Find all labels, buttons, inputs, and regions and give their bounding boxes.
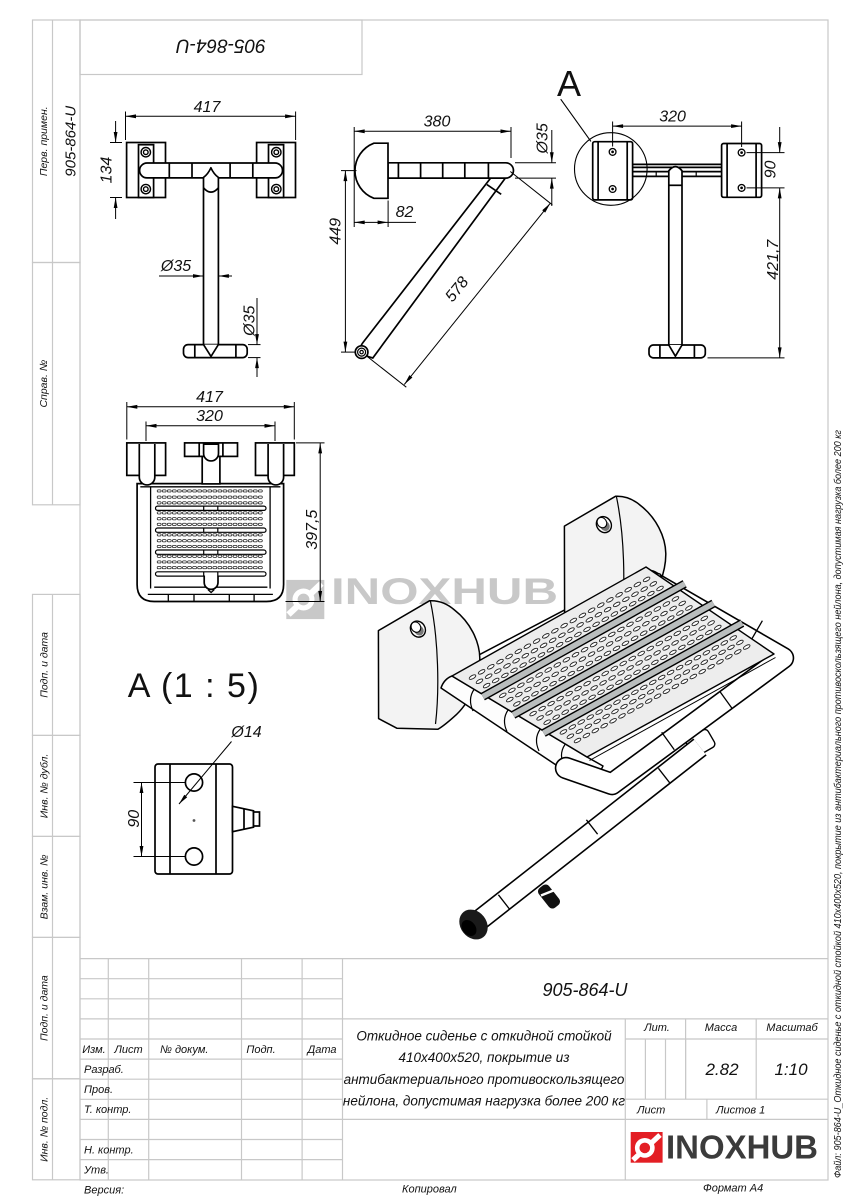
- svg-text:Откидное сиденье с откидной ст: Откидное сиденье с откидной стойкой: [356, 1029, 612, 1044]
- svg-text:Лист: Лист: [636, 1105, 665, 1117]
- svg-text:320: 320: [196, 408, 223, 425]
- svg-text:Файл: 905-864-U_Откидное сиден: Файл: 905-864-U_Откидное сиденье с откид…: [832, 430, 844, 1178]
- svg-text:Ø35: Ø35: [242, 305, 259, 336]
- svg-text:Утв.: Утв.: [83, 1165, 109, 1177]
- svg-text:A: A: [557, 63, 581, 104]
- svg-text:90: 90: [126, 810, 143, 828]
- svg-text:A (1 : 5): A (1 : 5): [128, 667, 261, 705]
- svg-text:Ø14: Ø14: [230, 724, 261, 741]
- svg-text:Версия:: Версия:: [84, 1185, 124, 1197]
- svg-text:Формат А4: Формат А4: [703, 1183, 763, 1195]
- svg-text:417: 417: [194, 99, 222, 116]
- svg-text:905-864-U: 905-864-U: [62, 106, 79, 177]
- svg-text:Разраб.: Разраб.: [84, 1064, 124, 1076]
- svg-text:Пров.: Пров.: [84, 1084, 113, 1096]
- svg-text:Инв. № дубл.: Инв. № дубл.: [38, 754, 50, 819]
- svg-text:320: 320: [659, 108, 686, 125]
- svg-text:421,7: 421,7: [765, 239, 782, 280]
- svg-text:417: 417: [196, 389, 224, 406]
- svg-text:410х400х520, покрытие из: 410х400х520, покрытие из: [398, 1050, 569, 1065]
- svg-text:нейлона, допустимая нагрузка б: нейлона, допустимая нагрузка более 200 к…: [343, 1094, 626, 1109]
- svg-text:Листов 1: Листов 1: [715, 1105, 765, 1117]
- svg-text:Подп. и дата: Подп. и дата: [38, 975, 50, 1041]
- svg-text:Перв. примен.: Перв. примен.: [38, 106, 50, 176]
- svg-text:905-864-U: 905-864-U: [542, 980, 628, 1000]
- svg-text:Справ. №: Справ. №: [38, 360, 50, 408]
- svg-text:90: 90: [763, 161, 780, 179]
- svg-text:397,5: 397,5: [304, 510, 321, 550]
- svg-text:Н. контр.: Н. контр.: [84, 1144, 134, 1156]
- svg-text:антибактериального противоскол: антибактериального противоскользящего: [344, 1072, 625, 1087]
- svg-text:Копировал: Копировал: [402, 1184, 457, 1196]
- svg-text:449: 449: [328, 218, 345, 245]
- svg-text:Лист: Лист: [113, 1044, 142, 1056]
- svg-text:Взам. инв. №: Взам. инв. №: [38, 854, 50, 919]
- svg-text:Ø35: Ø35: [535, 123, 552, 154]
- svg-text:380: 380: [424, 113, 451, 130]
- svg-text:1:10: 1:10: [774, 1060, 808, 1079]
- svg-text:Ø35: Ø35: [160, 258, 191, 275]
- svg-text:Т. контр.: Т. контр.: [84, 1104, 131, 1116]
- svg-text:Дата: Дата: [305, 1044, 336, 1056]
- svg-text:82: 82: [396, 204, 414, 221]
- svg-text:Инв. № подл.: Инв. № подл.: [38, 1097, 50, 1162]
- svg-text:Масса: Масса: [705, 1022, 738, 1034]
- svg-text:Масштаб: Масштаб: [766, 1022, 818, 1034]
- svg-text:Подп.: Подп.: [246, 1044, 275, 1056]
- svg-text:Изм.: Изм.: [82, 1044, 105, 1056]
- svg-text:134: 134: [99, 157, 116, 184]
- svg-text:2.82: 2.82: [704, 1060, 739, 1079]
- svg-text:№ докум.: № докум.: [160, 1044, 208, 1056]
- svg-text:Лит.: Лит.: [643, 1022, 670, 1034]
- svg-text:Подп. и дата: Подп. и дата: [38, 632, 50, 698]
- svg-text:INOXHUB: INOXHUB: [666, 1129, 818, 1166]
- svg-text:905-864-U: 905-864-U: [176, 35, 266, 56]
